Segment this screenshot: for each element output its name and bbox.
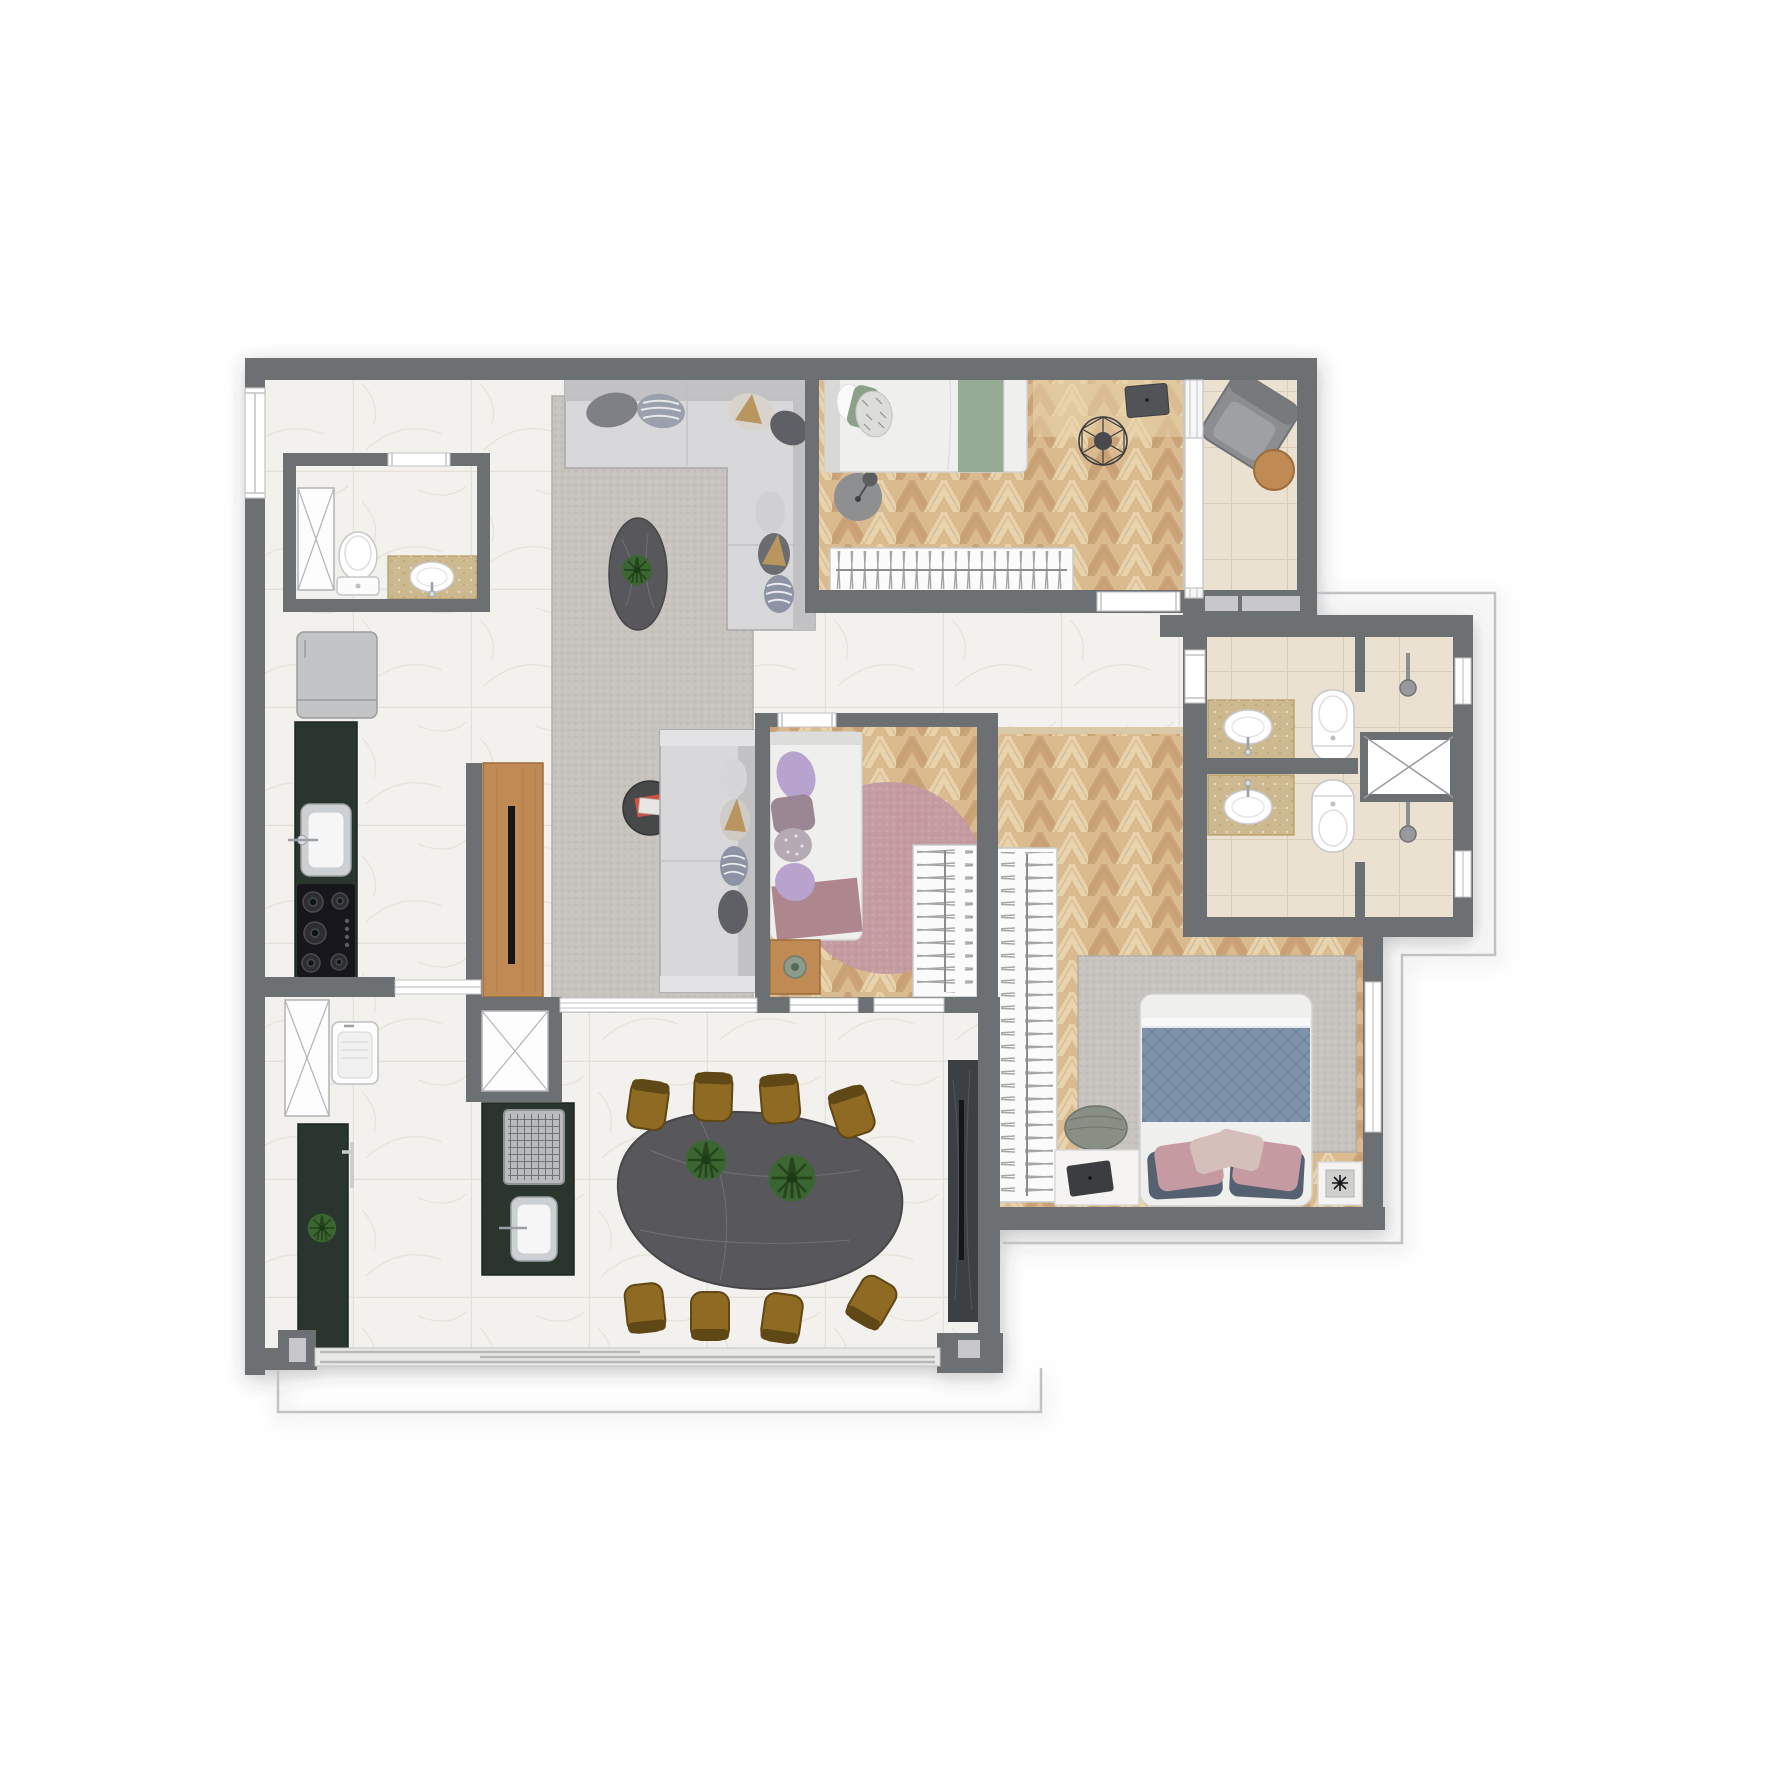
wall-bathrooms-bottom — [1183, 917, 1473, 937]
wall-top — [245, 358, 1317, 380]
bathroom-door — [1185, 650, 1205, 703]
sofa-chaise-pillow-striped — [764, 575, 794, 613]
bedroom1-wardrobe — [830, 548, 1073, 592]
dining-dark-panel — [948, 1060, 978, 1322]
kitchen-sliding-door — [395, 980, 481, 994]
tv-wood-panel — [483, 763, 543, 997]
dining-chair-6 — [691, 1292, 729, 1340]
wall-lavabo-bottom — [283, 599, 490, 612]
sofa-chaise-pillow-two-tone — [758, 533, 790, 575]
floor-plan — [245, 358, 1495, 1412]
wall-end-inset — [958, 1340, 980, 1358]
sofa2-pillow-white — [719, 758, 747, 798]
bedroom2-nightstand — [770, 940, 820, 994]
entry-window — [245, 388, 265, 498]
hall-threshold — [997, 727, 1183, 734]
balcony-side-table — [1254, 450, 1294, 490]
bedroom1-desk — [1125, 383, 1170, 418]
pillar-inset — [289, 1338, 306, 1362]
master-window — [1365, 982, 1381, 1132]
living-glass-partition — [560, 998, 757, 1012]
master-sheet-fold — [1142, 1018, 1310, 1028]
nightstand-plant — [1332, 1175, 1348, 1191]
bath1-vanity — [1208, 700, 1294, 760]
guest-toilet — [337, 532, 379, 595]
wall-shower1-stub — [1355, 637, 1365, 692]
bed2-headboard — [770, 732, 862, 745]
utility-sink — [332, 1022, 378, 1084]
coffee-table — [609, 518, 667, 630]
master-pouf — [1065, 1106, 1127, 1150]
dining-panel-tv — [959, 1100, 964, 1260]
bedroom-2-door — [778, 713, 836, 727]
straight-sofa-arm-bottom — [660, 976, 756, 992]
wall-lavabo-right — [477, 453, 490, 612]
wall-master-bottom — [990, 1207, 1385, 1230]
dining-chair-3 — [759, 1073, 801, 1124]
bottom-terrace-outline — [278, 1368, 1041, 1412]
master-nightstand — [1318, 1162, 1362, 1205]
bath2-toilet — [1312, 780, 1354, 852]
service-shaft — [466, 997, 562, 1102]
dining-chair-1 — [626, 1079, 670, 1132]
tv-screen — [508, 806, 515, 964]
balcony-glass-partition — [1185, 380, 1203, 598]
dining-chair-2 — [693, 1072, 733, 1121]
wall-balcony-right — [1297, 378, 1317, 598]
bedroom-1-door — [1097, 592, 1180, 611]
wall-bedroom1-left — [805, 377, 819, 590]
bedroom2-bed — [770, 732, 863, 940]
bath1-toilet — [1312, 690, 1354, 762]
bedroom1-bed — [825, 375, 1027, 472]
dining-chair-7 — [760, 1292, 804, 1345]
cooktop — [297, 884, 355, 978]
wall-bedroom2-right — [977, 713, 998, 997]
sofa2-pillow-charcoal — [718, 890, 748, 934]
laundry-plant — [308, 1214, 337, 1243]
floor-plan-svg — [0, 0, 1771, 1771]
bathroom-shaft-box — [1364, 736, 1454, 798]
sofa-chaise-pillow-white — [755, 491, 785, 533]
straight-sofa-arm-top — [660, 730, 756, 746]
bath2-vanity — [1208, 775, 1294, 835]
bedroom2-wardrobe — [913, 845, 977, 997]
wall-bathrooms-middle — [1207, 758, 1358, 774]
grill-island — [482, 1103, 574, 1275]
bed1-headboard — [825, 375, 840, 472]
shaft-square-1 — [1205, 596, 1238, 611]
coffee-table-plant — [622, 555, 652, 585]
bed1-green-runner — [958, 375, 1004, 472]
laundry-shaft-closet — [285, 1000, 329, 1116]
wall-tv-stub — [466, 763, 482, 997]
master-bench — [1055, 1150, 1139, 1205]
floor-plan-image — [0, 0, 1771, 1771]
dining-chair-5 — [624, 1282, 667, 1334]
bed2-pillow-dotted — [774, 828, 812, 862]
floor-lamp — [863, 472, 878, 487]
wall-shower2-stub — [1355, 862, 1365, 917]
sofa2-pillow-striped — [720, 846, 748, 886]
balcony-door-frame — [1185, 438, 1203, 588]
master-open-closet — [997, 848, 1057, 1202]
master-bed — [1140, 994, 1312, 1206]
guest-vanity — [388, 556, 477, 599]
table-plant-2 — [769, 1155, 816, 1202]
wall-bedroom2-left — [755, 713, 770, 1013]
shaft-square-2 — [1242, 596, 1300, 611]
terrace-sliding-door — [315, 1348, 940, 1366]
wall-dining-master — [978, 997, 1000, 1355]
wall-lavabo-left — [283, 453, 296, 612]
straight-sofa — [660, 730, 756, 992]
refrigerator — [297, 632, 377, 718]
wall-kitchen-laundry — [245, 977, 395, 997]
table-plant-1 — [686, 1140, 727, 1181]
hall-marble-floor — [978, 613, 1183, 734]
wall-left — [245, 358, 265, 1375]
wall-lavabo-top — [283, 453, 490, 466]
guest-bath-door — [388, 453, 450, 466]
guest-bathroom-shaft-closet — [298, 488, 334, 590]
